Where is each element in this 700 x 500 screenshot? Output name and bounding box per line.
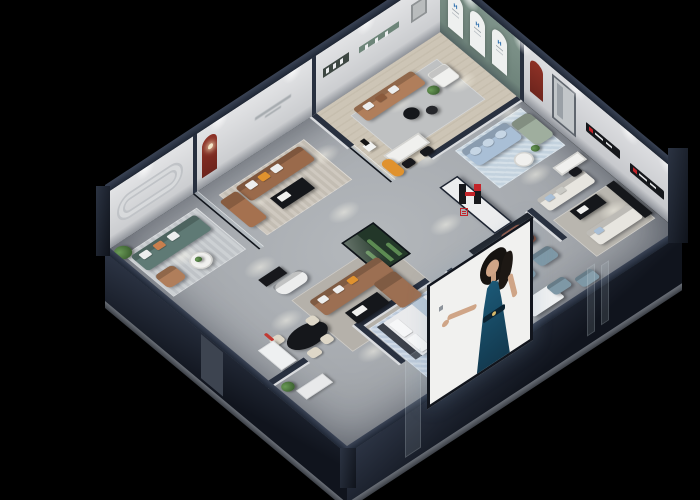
logo-red-bar	[465, 192, 475, 196]
brand-mark-red	[589, 126, 593, 133]
brand-mark-text	[639, 173, 647, 182]
brand-mark-text	[650, 182, 656, 189]
brand-mark-red	[633, 167, 637, 174]
brand-character	[460, 208, 468, 216]
brand-logo-h-mark	[459, 184, 483, 204]
brand-mark-text	[595, 132, 603, 141]
ledge-vase	[340, 58, 343, 65]
corner-column	[96, 186, 110, 256]
wall-art-frame	[411, 0, 427, 23]
niche-lamp	[208, 142, 213, 150]
poster-woman-hand	[442, 318, 449, 329]
showroom-render: H H H	[0, 0, 700, 500]
shelf-item	[365, 44, 368, 51]
window-slit	[601, 260, 609, 325]
poster-woman-arm	[507, 272, 517, 298]
ledge-vase	[326, 67, 329, 74]
shelf-item	[385, 30, 388, 37]
corner-column	[668, 148, 688, 243]
brand-logo-characters	[460, 208, 484, 216]
brand-mark-text	[606, 142, 612, 149]
storefront-glass	[405, 347, 421, 457]
corner-column	[340, 448, 356, 488]
brand-logo	[452, 184, 492, 226]
white-cabinet	[296, 373, 333, 399]
spotlight-pool	[322, 197, 365, 228]
logo-red-block	[474, 184, 481, 191]
window-slit	[587, 263, 595, 336]
poster-woman-dress	[472, 266, 514, 383]
ledge-vase	[333, 62, 336, 69]
poster-woman-arm	[447, 303, 477, 320]
shelf-item	[375, 37, 378, 44]
